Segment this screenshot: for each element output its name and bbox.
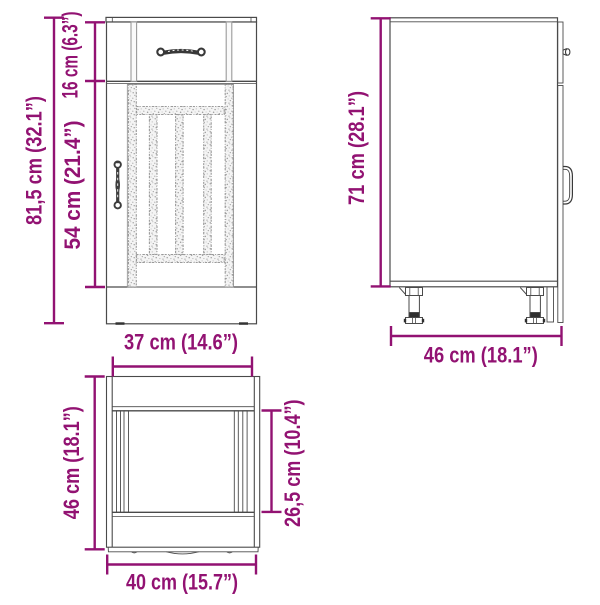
svg-text:16 cm (6.3”): 16 cm (6.3”): [58, 12, 83, 99]
svg-text:40 cm (15.7”): 40 cm (15.7”): [126, 570, 238, 595]
svg-text:71 cm (28.1”): 71 cm (28.1”): [344, 91, 369, 205]
svg-text:26,5 cm (10.4”): 26,5 cm (10.4”): [280, 399, 305, 527]
svg-text:81,5 cm (32.1”): 81,5 cm (32.1”): [22, 96, 47, 225]
svg-text:37 cm (14.6”): 37 cm (14.6”): [124, 330, 238, 355]
svg-text:54 cm (21.4”): 54 cm (21.4”): [60, 121, 85, 250]
svg-text:46 cm (18.1”): 46 cm (18.1”): [424, 343, 538, 368]
svg-text:46 cm (18.1”): 46 cm (18.1”): [59, 406, 84, 519]
